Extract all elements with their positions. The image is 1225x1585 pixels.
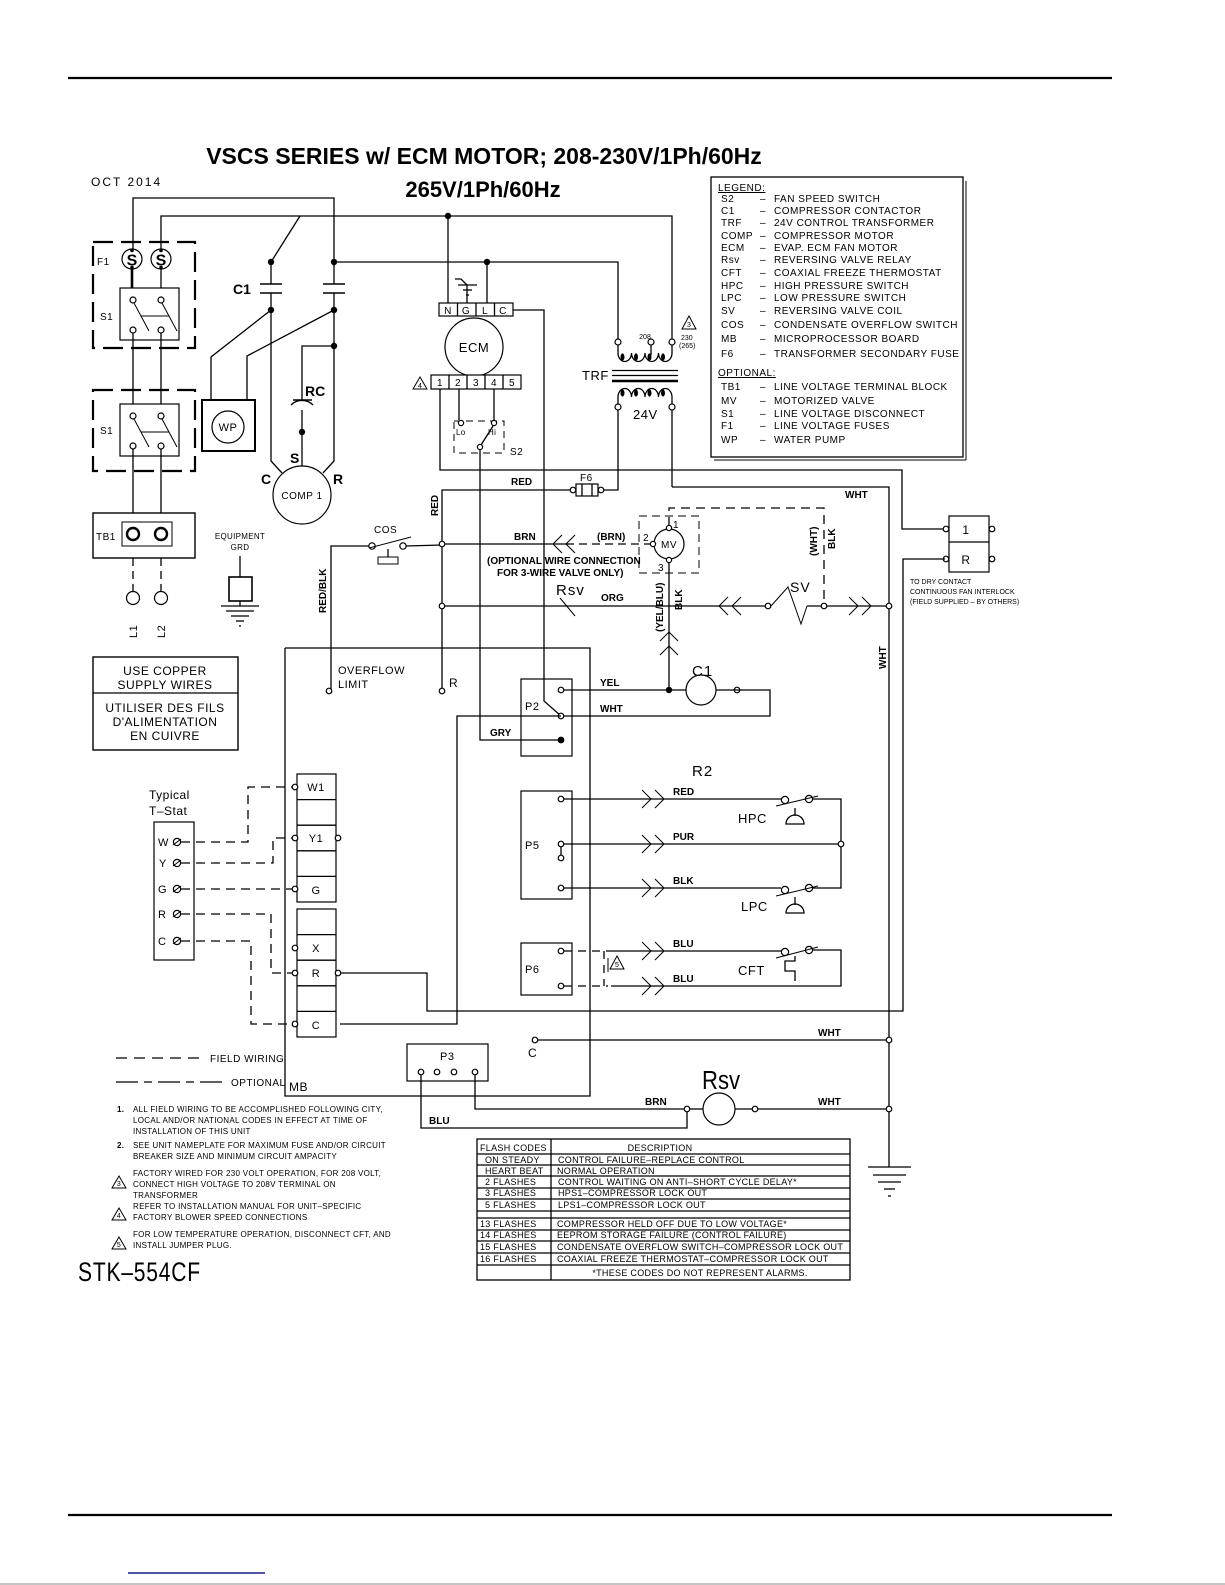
- svg-text:(WHT): (WHT): [809, 527, 820, 556]
- svg-text:TB1: TB1: [721, 382, 741, 393]
- svg-text:MB: MB: [721, 334, 737, 345]
- svg-text:5: 5: [615, 962, 619, 969]
- svg-text:GRD: GRD: [231, 543, 250, 552]
- svg-text:ON STEADY: ON STEADY: [485, 1155, 540, 1165]
- svg-text:SV: SV: [790, 579, 811, 595]
- svg-text:LEGEND:: LEGEND:: [718, 183, 765, 194]
- svg-text:24V: 24V: [633, 407, 658, 422]
- svg-text:–: –: [760, 320, 766, 331]
- svg-text:13 FLASHES: 13 FLASHES: [480, 1219, 537, 1229]
- svg-text:24V CONTROL TRANSFORMER: 24V CONTROL TRANSFORMER: [774, 218, 934, 229]
- svg-text:(OPTIONAL WIRE CONNECTION: (OPTIONAL WIRE CONNECTION: [487, 556, 641, 567]
- svg-text:WHT: WHT: [878, 646, 889, 669]
- svg-text:TO DRY CONTACT: TO DRY CONTACT: [910, 579, 972, 586]
- svg-text:–: –: [760, 243, 766, 254]
- svg-text:COMPRESSOR HELD OFF DUE TO LOW: COMPRESSOR HELD OFF DUE TO LOW VOLTAGE*: [557, 1219, 787, 1229]
- svg-text:S2: S2: [510, 447, 523, 458]
- svg-text:–: –: [760, 194, 766, 205]
- svg-text:5 FLASHES: 5 FLASHES: [485, 1200, 536, 1210]
- svg-text:R: R: [449, 676, 458, 690]
- svg-text:R: R: [961, 553, 970, 567]
- svg-text:CONDENSATE OVERFLOW SWITCH–COM: CONDENSATE OVERFLOW SWITCH–COMPRESSOR LO…: [557, 1242, 843, 1252]
- svg-text:–: –: [760, 409, 766, 420]
- svg-text:FOR 3-WIRE VALVE ONLY): FOR 3-WIRE VALVE ONLY): [497, 568, 624, 579]
- svg-text:3: 3: [687, 322, 691, 329]
- svg-text:P2: P2: [525, 701, 539, 713]
- svg-text:(FIELD SUPPLIED – BY OTHERS): (FIELD SUPPLIED – BY OTHERS): [910, 599, 1019, 606]
- svg-text:HPS1–COMPRESSOR LOCK OUT: HPS1–COMPRESSOR LOCK OUT: [558, 1188, 707, 1198]
- svg-text:WHT: WHT: [600, 704, 623, 715]
- svg-text:–: –: [760, 206, 766, 217]
- svg-text:C1: C1: [721, 206, 735, 217]
- svg-text:15 FLASHES: 15 FLASHES: [480, 1242, 537, 1252]
- svg-text:CONTROL WAITING ON ANTI–SHORT: CONTROL WAITING ON ANTI–SHORT CYCLE DELA…: [558, 1177, 797, 1187]
- svg-text:1: 1: [962, 523, 969, 537]
- svg-text:FLASH CODES: FLASH CODES: [480, 1143, 547, 1153]
- svg-text:MOTORIZED VALVE: MOTORIZED VALVE: [774, 396, 875, 407]
- svg-text:208: 208: [639, 334, 651, 341]
- svg-text:2.: 2.: [117, 1141, 124, 1150]
- svg-text:C: C: [261, 471, 271, 487]
- svg-text:EVAP. ECM FAN MOTOR: EVAP. ECM FAN MOTOR: [774, 243, 898, 254]
- svg-text:HPC: HPC: [721, 281, 744, 292]
- svg-text:–: –: [760, 396, 766, 407]
- svg-text:265V/1Ph/60Hz: 265V/1Ph/60Hz: [405, 177, 560, 202]
- svg-text:(265): (265): [679, 343, 695, 350]
- svg-text:CONDENSATE OVERFLOW SWITCH: CONDENSATE OVERFLOW SWITCH: [774, 320, 958, 331]
- svg-text:COMPRESSOR CONTACTOR: COMPRESSOR CONTACTOR: [774, 206, 921, 217]
- svg-text:FAN SPEED SWITCH: FAN SPEED SWITCH: [774, 194, 880, 205]
- svg-text:LINE VOLTAGE TERMINAL BLOCK: LINE VOLTAGE TERMINAL BLOCK: [774, 382, 948, 393]
- svg-text:TRANSFORMER SECONDARY FUSE: TRANSFORMER SECONDARY FUSE: [774, 349, 959, 360]
- svg-text:WHT: WHT: [818, 1097, 841, 1108]
- svg-text:MV: MV: [661, 540, 677, 551]
- svg-text:(YEL/BLU): (YEL/BLU): [655, 583, 666, 632]
- svg-text:BRN: BRN: [514, 532, 536, 543]
- svg-text:BLU: BLU: [429, 1116, 450, 1127]
- svg-text:–: –: [760, 382, 766, 393]
- svg-text:RED: RED: [673, 787, 694, 798]
- svg-text:STK–554CF: STK–554CF: [78, 1258, 201, 1288]
- svg-text:REVERSING VALVE RELAY: REVERSING VALVE RELAY: [774, 255, 912, 266]
- svg-text:EQUIPMENT: EQUIPMENT: [215, 532, 265, 541]
- svg-text:LIMIT: LIMIT: [338, 679, 369, 691]
- svg-text:Typical: Typical: [149, 788, 190, 802]
- svg-text:D'ALIMENTATION: D'ALIMENTATION: [113, 715, 218, 729]
- svg-text:R: R: [158, 909, 166, 921]
- svg-text:G: G: [311, 885, 320, 897]
- svg-text:–: –: [760, 293, 766, 304]
- svg-text:BLU: BLU: [673, 974, 694, 985]
- svg-text:F1: F1: [97, 257, 110, 268]
- svg-text:2: 2: [455, 378, 461, 389]
- svg-text:5: 5: [117, 1242, 121, 1249]
- svg-text:FACTORY BLOWER SPEED CONNECTIO: FACTORY BLOWER SPEED CONNECTIONS: [133, 1213, 308, 1222]
- svg-text:R: R: [312, 968, 320, 980]
- svg-text:G: G: [158, 884, 167, 896]
- svg-text:FACTORY WIRED FOR 230 VOLT OPE: FACTORY WIRED FOR 230 VOLT OPERATION, FO…: [133, 1169, 381, 1178]
- svg-text:4: 4: [491, 378, 497, 389]
- svg-text:COS: COS: [374, 525, 397, 536]
- svg-text:OPTIONAL: OPTIONAL: [231, 1078, 286, 1089]
- svg-text:CONTINUOUS FAN INTERLOCK: CONTINUOUS FAN INTERLOCK: [910, 589, 1015, 596]
- svg-text:–: –: [760, 349, 766, 360]
- svg-text:LPS1–COMPRESSOR LOCK OUT: LPS1–COMPRESSOR LOCK OUT: [558, 1200, 706, 1210]
- svg-text:N: N: [444, 306, 452, 317]
- svg-text:230: 230: [681, 335, 693, 342]
- svg-text:5: 5: [509, 378, 515, 389]
- svg-text:S2: S2: [721, 194, 734, 205]
- svg-text:Rsv: Rsv: [721, 255, 740, 266]
- svg-text:RED: RED: [511, 477, 532, 488]
- svg-text:BREAKER SIZE AND MINIMUM CIRCU: BREAKER SIZE AND MINIMUM CIRCUIT AMPACIT…: [133, 1152, 337, 1161]
- svg-text:–: –: [760, 306, 766, 317]
- svg-text:LPC: LPC: [741, 899, 768, 914]
- svg-text:CONTROL FAILURE–REPLACE CONTRO: CONTROL FAILURE–REPLACE CONTROL: [558, 1155, 745, 1165]
- svg-text:COMP 1: COMP 1: [281, 491, 322, 502]
- svg-text:ALL FIELD WIRING TO BE ACCOMPL: ALL FIELD WIRING TO BE ACCOMPLISHED FOLL…: [133, 1105, 383, 1114]
- svg-text:R: R: [333, 471, 343, 487]
- svg-text:INSTALLATION OF THIS UNIT: INSTALLATION OF THIS UNIT: [133, 1127, 251, 1136]
- svg-text:2: 2: [643, 533, 649, 544]
- svg-text:3: 3: [658, 563, 664, 574]
- svg-text:YEL: YEL: [600, 678, 619, 689]
- svg-text:SEE UNIT NAMEPLATE FOR MAXIMUM: SEE UNIT NAMEPLATE FOR MAXIMUM FUSE AND/…: [133, 1141, 386, 1150]
- svg-text:C: C: [312, 1020, 320, 1032]
- svg-text:BLK: BLK: [673, 876, 694, 887]
- svg-text:CONNECT HIGH VOLTAGE TO 208V T: CONNECT HIGH VOLTAGE TO 208V TERMINAL ON: [133, 1180, 336, 1189]
- svg-text:–: –: [760, 281, 766, 292]
- svg-text:HPC: HPC: [738, 811, 767, 826]
- svg-text:TRF: TRF: [721, 218, 742, 229]
- svg-text:L2: L2: [156, 625, 168, 638]
- svg-text:–: –: [760, 218, 766, 229]
- svg-text:Y: Y: [159, 858, 167, 870]
- svg-text:BRN: BRN: [645, 1097, 667, 1108]
- svg-text:BLU: BLU: [673, 939, 694, 950]
- svg-text:MB: MB: [289, 1080, 308, 1094]
- svg-text:UTILISER DES FILS: UTILISER DES FILS: [105, 701, 224, 715]
- svg-text:3 FLASHES: 3 FLASHES: [485, 1188, 536, 1198]
- svg-text:L: L: [482, 306, 488, 317]
- svg-text:1: 1: [437, 378, 443, 389]
- svg-text:VSCS SERIES w/ ECM MOTOR; 208-: VSCS SERIES w/ ECM MOTOR; 208-230V/1Ph/6…: [206, 143, 762, 169]
- svg-text:EEPROM STORAGE FAILURE (CONTRO: EEPROM STORAGE FAILURE (CONTROL FAILURE): [557, 1230, 787, 1240]
- svg-text:W: W: [158, 837, 169, 849]
- svg-text:USE COPPER: USE COPPER: [123, 664, 207, 678]
- svg-text:F6: F6: [580, 473, 593, 484]
- svg-text:2 FLASHES: 2 FLASHES: [485, 1177, 536, 1187]
- svg-text:HIGH PRESSURE SWITCH: HIGH PRESSURE SWITCH: [774, 281, 909, 292]
- svg-text:–: –: [760, 435, 766, 446]
- svg-text:COMP: COMP: [721, 231, 753, 242]
- svg-text:T–Stat: T–Stat: [149, 804, 188, 818]
- svg-text:REFER TO INSTALLATION MANUAL F: REFER TO INSTALLATION MANUAL FOR UNIT–SP…: [133, 1202, 362, 1211]
- svg-text:WATER PUMP: WATER PUMP: [774, 435, 846, 446]
- svg-text:–: –: [760, 231, 766, 242]
- svg-text:CFT: CFT: [738, 963, 765, 978]
- svg-text:P6: P6: [525, 964, 539, 976]
- svg-text:TRF: TRF: [582, 368, 609, 383]
- svg-text:RED: RED: [430, 495, 441, 516]
- svg-text:FOR LOW TEMPERATURE OPERATION,: FOR LOW TEMPERATURE OPERATION, DISCONNEC…: [133, 1230, 391, 1239]
- svg-text:Rsv: Rsv: [556, 582, 585, 599]
- svg-text:Lo: Lo: [456, 428, 466, 437]
- svg-text:PUR: PUR: [673, 832, 695, 843]
- svg-text:OPTIONAL:: OPTIONAL:: [718, 368, 776, 379]
- svg-text:ORG: ORG: [601, 593, 624, 604]
- svg-text:DESCRIPTION: DESCRIPTION: [628, 1143, 693, 1153]
- svg-text:Rsv: Rsv: [702, 1066, 740, 1095]
- svg-text:X: X: [312, 943, 320, 955]
- svg-text:WHT: WHT: [818, 1028, 841, 1039]
- svg-text:BLK: BLK: [827, 528, 838, 549]
- svg-text:TRANSFORMER: TRANSFORMER: [133, 1191, 198, 1200]
- svg-text:C1: C1: [692, 663, 713, 680]
- svg-text:R2: R2: [692, 763, 713, 780]
- svg-text:RC: RC: [305, 383, 325, 399]
- svg-text:FIELD WIRING: FIELD WIRING: [210, 1054, 284, 1065]
- svg-text:P5: P5: [525, 840, 539, 852]
- svg-text:F6: F6: [721, 349, 734, 360]
- svg-text:WP: WP: [721, 435, 738, 446]
- svg-text:MV: MV: [721, 396, 737, 407]
- svg-text:F1: F1: [721, 421, 734, 432]
- svg-text:NORMAL OPERATION: NORMAL OPERATION: [557, 1166, 655, 1176]
- svg-text:–: –: [760, 255, 766, 266]
- svg-text:OCT 2014: OCT 2014: [91, 175, 162, 189]
- svg-text:C: C: [158, 936, 166, 948]
- svg-text:C: C: [499, 306, 507, 317]
- svg-text:BLK: BLK: [674, 589, 685, 610]
- svg-text:CFT: CFT: [721, 268, 742, 279]
- svg-text:LINE VOLTAGE DISCONNECT: LINE VOLTAGE DISCONNECT: [774, 409, 925, 420]
- svg-text:14 FLASHES: 14 FLASHES: [480, 1230, 537, 1240]
- svg-text:16 FLASHES: 16 FLASHES: [480, 1254, 537, 1264]
- svg-text:REVERSING VALVE COIL: REVERSING VALVE COIL: [774, 306, 903, 317]
- svg-text:1: 1: [673, 520, 679, 531]
- svg-text:L1: L1: [128, 625, 140, 638]
- svg-text:3: 3: [473, 378, 479, 389]
- svg-text:COS: COS: [721, 320, 744, 331]
- svg-text:COAXIAL FREEZE THERMOSTAT: COAXIAL FREEZE THERMOSTAT: [774, 268, 942, 279]
- svg-text:Y1: Y1: [309, 833, 323, 845]
- svg-text:LOCAL AND/OR NATIONAL CODES IN: LOCAL AND/OR NATIONAL CODES IN EFFECT AT…: [133, 1116, 367, 1125]
- svg-text:EN CUIVRE: EN CUIVRE: [130, 729, 200, 743]
- svg-text:–: –: [760, 334, 766, 345]
- svg-text:OVERFLOW: OVERFLOW: [338, 665, 405, 677]
- svg-text:S1: S1: [100, 312, 113, 323]
- svg-text:P3: P3: [440, 1051, 454, 1063]
- svg-text:LINE VOLTAGE FUSES: LINE VOLTAGE FUSES: [774, 421, 890, 432]
- svg-text:TB1: TB1: [96, 532, 116, 543]
- svg-text:ECM: ECM: [721, 243, 745, 254]
- svg-text:SV: SV: [721, 306, 735, 317]
- svg-text:WHT: WHT: [845, 490, 868, 501]
- svg-text:COAXIAL FREEZE THERMOSTAT–COMP: COAXIAL FREEZE THERMOSTAT–COMPRESSOR LOC…: [557, 1254, 829, 1264]
- svg-text:SUPPLY WIRES: SUPPLY WIRES: [118, 678, 213, 692]
- svg-text:W1: W1: [307, 782, 325, 794]
- svg-text:C1: C1: [233, 281, 251, 297]
- svg-text:GRY: GRY: [490, 728, 512, 739]
- svg-text:S1: S1: [100, 426, 113, 437]
- svg-text:RED/BLK: RED/BLK: [318, 568, 329, 613]
- svg-text:ECM: ECM: [459, 340, 489, 355]
- svg-text:WP: WP: [219, 422, 238, 434]
- svg-text:S1: S1: [721, 409, 734, 420]
- svg-text:–: –: [760, 268, 766, 279]
- svg-text:LOW PRESSURE SWITCH: LOW PRESSURE SWITCH: [774, 293, 906, 304]
- svg-text:*THESE CODES DO NOT REPRESENT: *THESE CODES DO NOT REPRESENT ALARMS.: [592, 1268, 807, 1278]
- svg-text:G: G: [462, 306, 470, 317]
- svg-text:–: –: [760, 421, 766, 432]
- svg-text:4: 4: [117, 1213, 121, 1220]
- svg-text:3: 3: [117, 1181, 121, 1188]
- svg-text:1.: 1.: [117, 1105, 124, 1114]
- svg-text:MICROPROCESSOR BOARD: MICROPROCESSOR BOARD: [774, 334, 920, 345]
- svg-text:(BRN): (BRN): [597, 532, 625, 543]
- svg-text:S: S: [290, 450, 299, 466]
- svg-text:LPC: LPC: [721, 293, 742, 304]
- svg-text:4: 4: [418, 383, 422, 390]
- svg-text:COMPRESSOR MOTOR: COMPRESSOR MOTOR: [774, 231, 894, 242]
- svg-text:HEART BEAT: HEART BEAT: [485, 1166, 544, 1176]
- svg-text:INSTALL JUMPER PLUG.: INSTALL JUMPER PLUG.: [133, 1241, 232, 1250]
- svg-text:C: C: [528, 1046, 537, 1060]
